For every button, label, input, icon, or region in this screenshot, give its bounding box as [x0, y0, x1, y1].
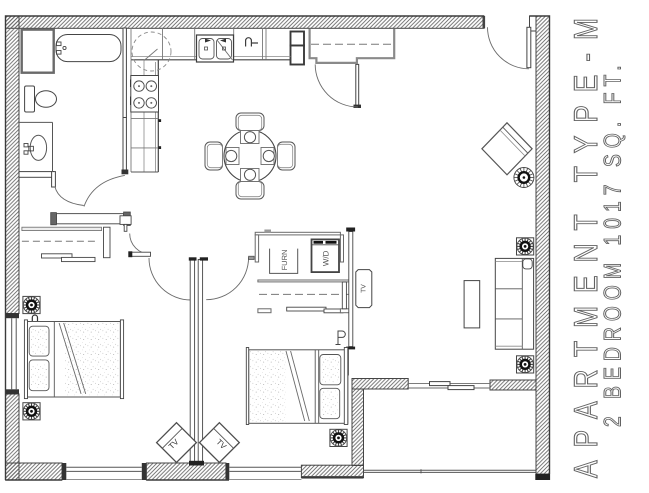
svg-text:TV: TV	[361, 284, 368, 293]
svg-text:FURN: FURN	[280, 250, 289, 271]
svg-text:W/D: W/D	[322, 250, 331, 266]
svg-text:APARTMENT TYPE-M: APARTMENT TYPE-M	[567, 18, 604, 478]
